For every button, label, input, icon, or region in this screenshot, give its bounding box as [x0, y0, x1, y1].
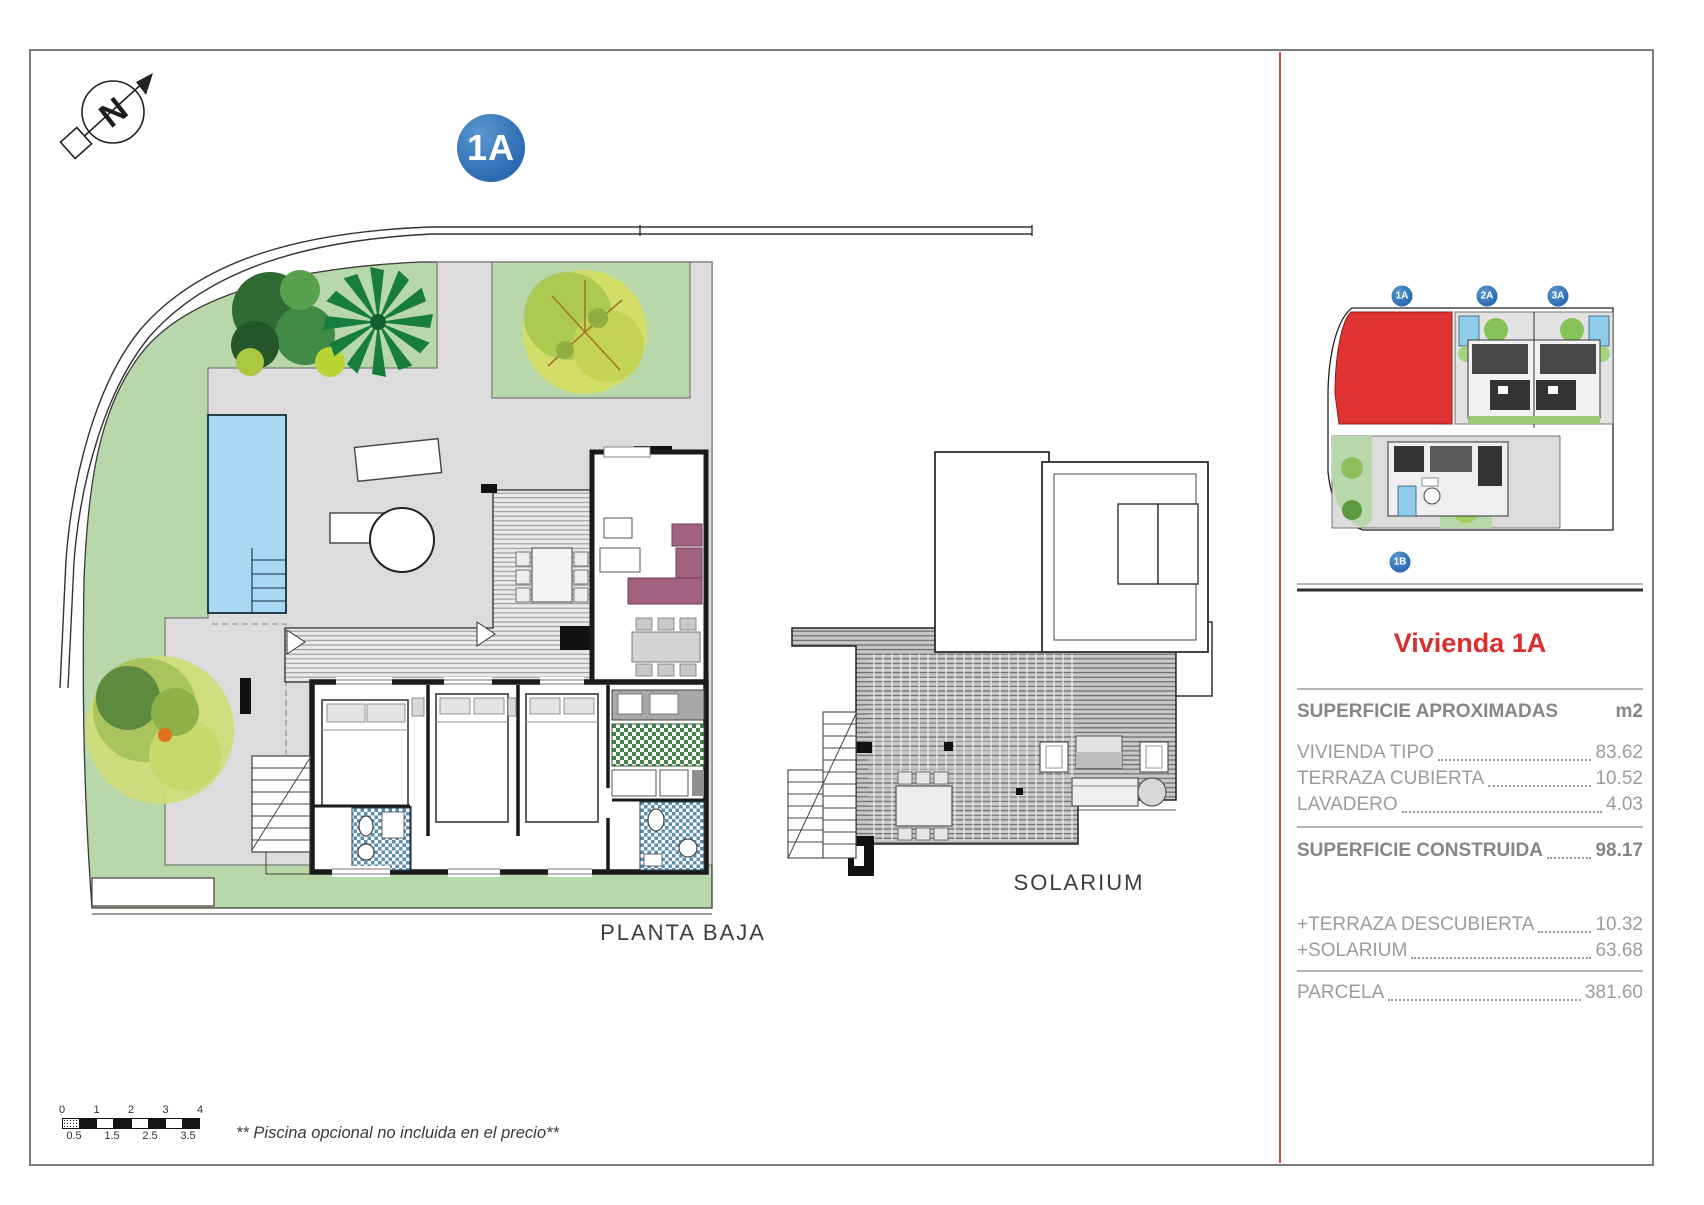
table-rule: [1297, 688, 1643, 690]
row-value: 83.62: [1595, 740, 1643, 766]
dot-leader: [1411, 957, 1591, 959]
bed: [322, 700, 408, 806]
row-label: SUPERFICIE CONSTRUIDA: [1297, 838, 1543, 864]
dot-leader: [1438, 759, 1592, 761]
scale-labels-bottom: 0.5 1.5 2.5 3.5: [62, 1130, 200, 1143]
scale-tick: 1.5: [102, 1130, 122, 1143]
scale-tick: 0.5: [64, 1130, 84, 1143]
row-label: PARCELA: [1297, 980, 1384, 1006]
table-header: SUPERFICIE APROXIMADAS m2: [1297, 700, 1643, 724]
map-badge-1a: 1A: [1392, 286, 1413, 307]
row-value: 63.68: [1595, 938, 1643, 964]
row-label: LAVADERO: [1297, 792, 1398, 818]
solarium-stairs: [788, 712, 856, 858]
table-rows: VIVIENDA TIPO 83.62 TERRAZA CUBIERTA 10.…: [1297, 740, 1643, 818]
row-value: 10.32: [1595, 912, 1643, 938]
plan-caption: PLANTA BAJA: [560, 920, 806, 946]
dot-leader: [1388, 999, 1581, 1001]
row-value: 98.17: [1595, 838, 1643, 864]
scale-tick: 2.5: [140, 1130, 160, 1143]
table-row-parcela: PARCELA 381.60: [1297, 980, 1643, 1006]
table-row-construida: SUPERFICIE CONSTRUIDA 98.17: [1297, 838, 1643, 864]
drawing-sheet: N: [0, 0, 1704, 1205]
table-row: +SOLARIUM 63.68: [1297, 938, 1643, 964]
plan-drawing: N: [0, 0, 1704, 1205]
scale-tick: 2: [125, 1104, 137, 1117]
unit-badge: 1A: [457, 114, 525, 182]
unit-badge-label: 1A: [467, 127, 515, 169]
dot-leader: [1547, 857, 1591, 859]
dot-leader: [1402, 811, 1602, 813]
row-label: +TERRAZA DESCUBIERTA: [1297, 912, 1534, 938]
map-badge-3a: 3A: [1548, 286, 1569, 307]
dot-leader: [1488, 785, 1591, 787]
pool-disclaimer-note: ** Piscina opcional no incluida en el pr…: [236, 1124, 656, 1143]
scale-tick: 3: [160, 1104, 172, 1117]
row-value: 10.52: [1595, 766, 1643, 792]
site-minimap: [1328, 308, 1613, 530]
north-compass-icon: N: [60, 73, 153, 159]
table-row: TERRAZA CUBIERTA 10.52: [1297, 766, 1643, 792]
table-header-unit: m2: [1616, 700, 1643, 724]
scale-bar-strip: [62, 1118, 200, 1129]
scale-tick: 1: [91, 1104, 103, 1117]
row-label: VIVIENDA TIPO: [1297, 740, 1434, 766]
table-row: VIVIENDA TIPO 83.62: [1297, 740, 1643, 766]
svg-text:N: N: [92, 90, 135, 135]
tree-large-yellow: [523, 270, 647, 394]
bed: [436, 694, 508, 822]
table-extras: +TERRAZA DESCUBIERTA 10.32 +SOLARIUM 63.…: [1297, 912, 1643, 964]
bed: [526, 694, 598, 822]
scale-labels-top: 0 1 2 3 4: [62, 1104, 200, 1117]
table-row: +TERRAZA DESCUBIERTA 10.32: [1297, 912, 1643, 938]
solarium-plan: [788, 452, 1212, 876]
tree-lawn: [86, 656, 234, 804]
scale-tick: 0: [56, 1104, 68, 1117]
table-row: LAVADERO 4.03: [1297, 792, 1643, 818]
row-value: 4.03: [1606, 792, 1643, 818]
table-header-label: SUPERFICIE APROXIMADAS: [1297, 700, 1558, 724]
table-rule: [1297, 970, 1643, 972]
table-rule: [1297, 826, 1643, 828]
scale-bar: 0 1 2 3 4 0.5 1.5 2.5 3.5: [62, 1104, 200, 1143]
row-value: 381.60: [1585, 980, 1643, 1006]
row-label: +SOLARIUM: [1297, 938, 1407, 964]
scale-tick: 3.5: [178, 1130, 198, 1143]
map-badge-2a: 2A: [1477, 286, 1498, 307]
solarium-caption: SOLARIUM: [999, 870, 1159, 896]
dot-leader: [1538, 931, 1591, 933]
pool: [208, 415, 286, 613]
map-badge-1b: 1B: [1390, 552, 1411, 573]
panel-title: Vivienda 1A: [1297, 628, 1643, 659]
surface-table: SUPERFICIE APROXIMADAS m2 VIVIENDA TIPO …: [1297, 688, 1643, 1006]
scale-tick: 4: [194, 1104, 206, 1117]
row-label: TERRAZA CUBIERTA: [1297, 766, 1484, 792]
